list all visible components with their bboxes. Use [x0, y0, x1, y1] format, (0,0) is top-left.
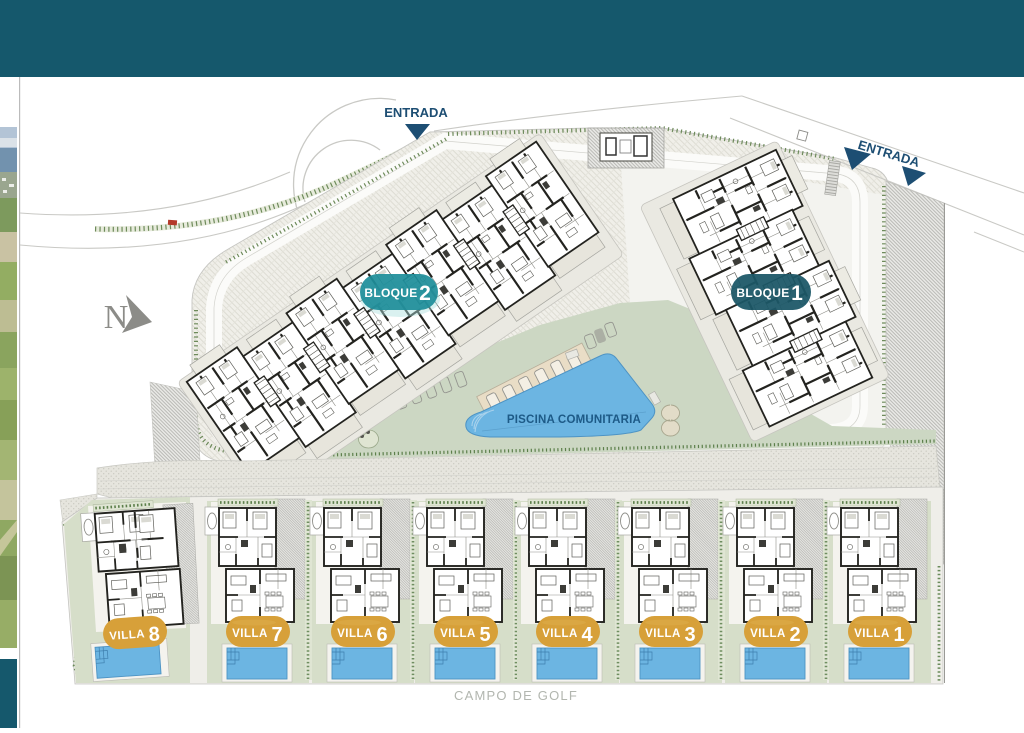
svg-text:VILLA: VILLA: [645, 628, 681, 640]
svg-text:CAMPO DE GOLF: CAMPO DE GOLF: [454, 688, 578, 703]
svg-text:7: 7: [271, 624, 282, 646]
svg-text:2: 2: [419, 282, 431, 305]
svg-text:2: 2: [789, 624, 800, 646]
svg-text:VILLA: VILLA: [440, 628, 476, 640]
svg-text:PISCINA COMUNITARIA: PISCINA COMUNITARIA: [507, 414, 641, 426]
svg-text:1: 1: [791, 282, 803, 305]
svg-text:ENTRADA: ENTRADA: [384, 105, 448, 120]
svg-text:BLOQUE: BLOQUE: [364, 286, 417, 300]
svg-text:4: 4: [581, 624, 593, 646]
svg-text:1: 1: [893, 624, 904, 646]
svg-text:VILLA: VILLA: [232, 628, 268, 640]
svg-text:5: 5: [479, 624, 490, 646]
svg-text:VILLA: VILLA: [750, 628, 786, 640]
svg-text:VILLA: VILLA: [854, 628, 890, 640]
svg-text:VILLA: VILLA: [542, 628, 578, 640]
svg-text:3: 3: [684, 624, 695, 646]
svg-text:BLOQUE: BLOQUE: [736, 286, 789, 300]
svg-text:VILLA: VILLA: [109, 628, 145, 642]
svg-text:8: 8: [148, 623, 161, 646]
svg-text:VILLA: VILLA: [337, 628, 373, 640]
svg-text:6: 6: [376, 624, 387, 646]
